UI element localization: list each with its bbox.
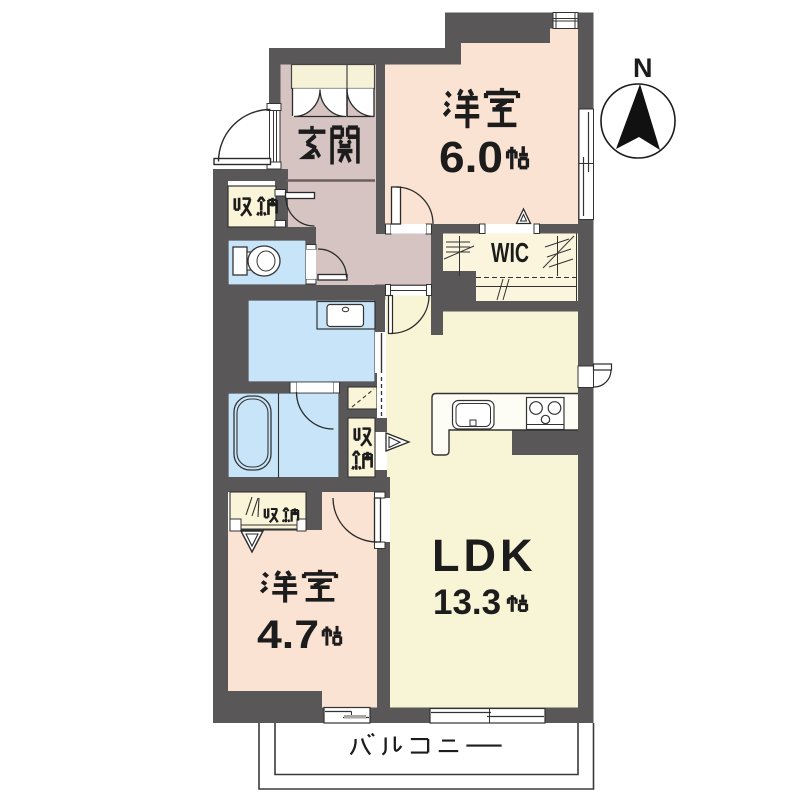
svg-text:N: N	[633, 53, 653, 83]
svg-text:WIC: WIC	[491, 237, 529, 268]
svg-text:13.3: 13.3	[433, 583, 501, 622]
svg-text:LDK: LDK	[432, 530, 536, 581]
svg-text:4.7: 4.7	[257, 613, 319, 657]
svg-text:6.0: 6.0	[439, 133, 503, 182]
